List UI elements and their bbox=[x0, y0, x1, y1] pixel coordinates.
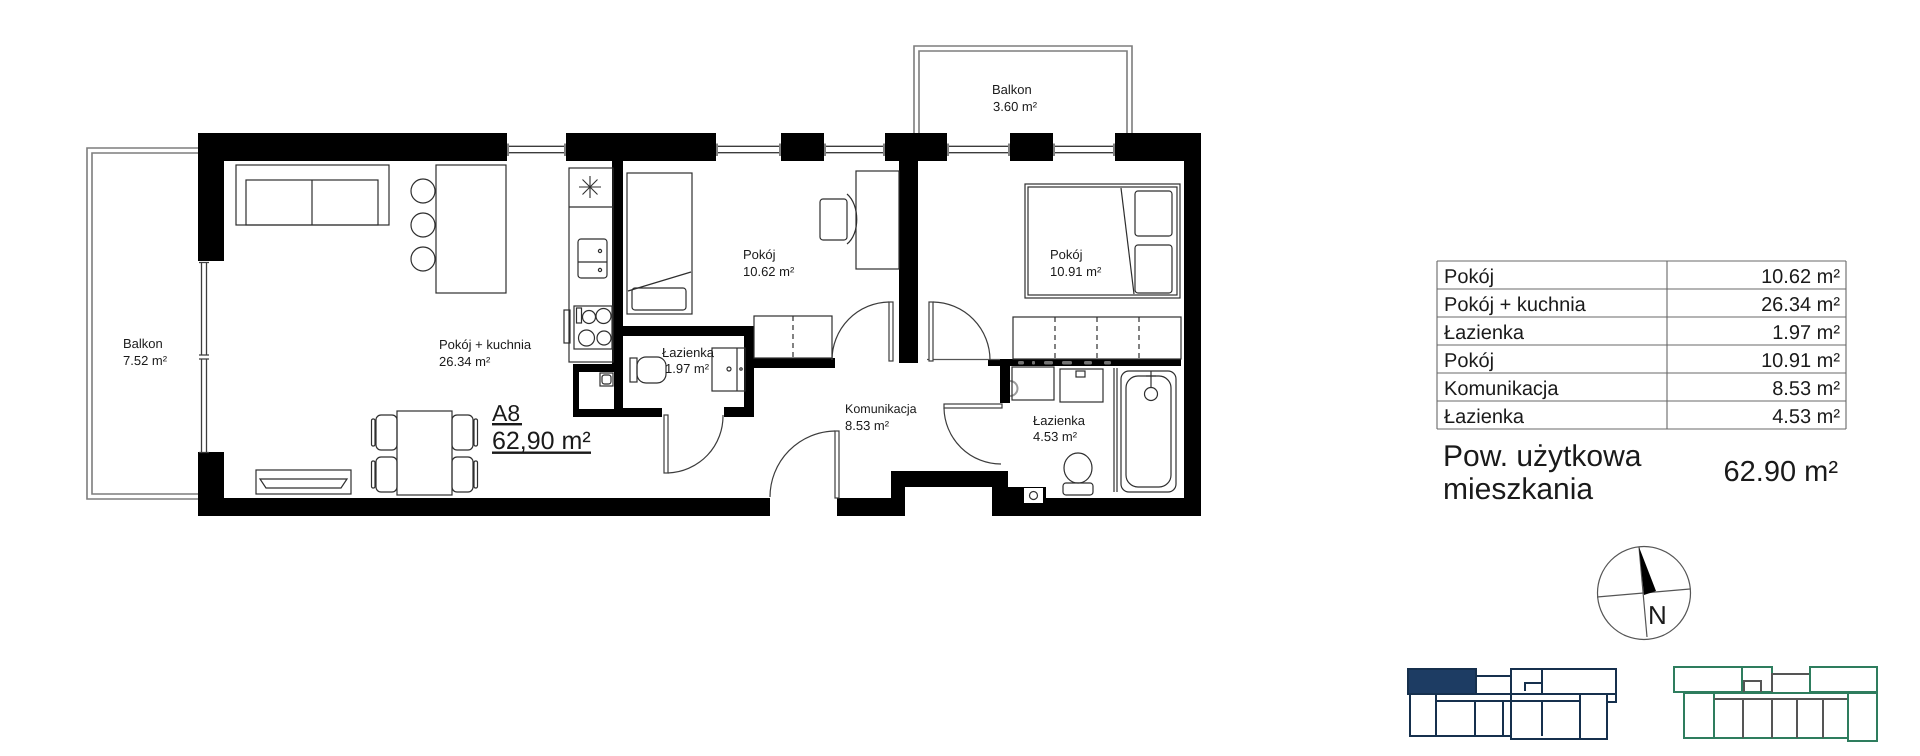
svg-text:10.91 m²: 10.91 m² bbox=[1761, 350, 1840, 372]
svg-text:3.60 m²: 3.60 m² bbox=[993, 99, 1038, 114]
svg-text:N: N bbox=[1648, 600, 1667, 630]
svg-text:Pokój: Pokój bbox=[743, 247, 776, 262]
svg-text:4.53 m²: 4.53 m² bbox=[1772, 406, 1840, 428]
svg-text:Łazienka: Łazienka bbox=[1444, 406, 1525, 428]
svg-text:mieszkania: mieszkania bbox=[1443, 473, 1593, 506]
svg-text:62,90 m²: 62,90 m² bbox=[492, 427, 591, 455]
svg-text:7.52 m²: 7.52 m² bbox=[123, 353, 168, 368]
svg-text:10.62 m²: 10.62 m² bbox=[1761, 266, 1840, 288]
svg-text:Łazienka: Łazienka bbox=[662, 345, 715, 360]
svg-text:Balkon: Balkon bbox=[992, 82, 1032, 97]
svg-text:Pokój: Pokój bbox=[1444, 350, 1494, 372]
svg-text:Pokój: Pokój bbox=[1444, 266, 1494, 288]
svg-text:Łazienka: Łazienka bbox=[1033, 413, 1086, 428]
svg-text:4.53 m²: 4.53 m² bbox=[1033, 429, 1078, 444]
svg-text:Komunikacja: Komunikacja bbox=[845, 402, 917, 416]
svg-text:Łazienka: Łazienka bbox=[1444, 322, 1525, 344]
svg-text:1.97 m²: 1.97 m² bbox=[1772, 322, 1840, 344]
svg-text:Pokój + kuchnia: Pokój + kuchnia bbox=[1444, 294, 1587, 316]
svg-text:Balkon: Balkon bbox=[123, 336, 163, 351]
svg-text:Pokój + kuchnia: Pokój + kuchnia bbox=[439, 337, 532, 352]
svg-text:10.62 m²: 10.62 m² bbox=[743, 264, 795, 279]
svg-text:26.34 m²: 26.34 m² bbox=[439, 354, 491, 369]
svg-text:Pow. użytkowa: Pow. użytkowa bbox=[1443, 440, 1642, 473]
svg-text:26.34 m²: 26.34 m² bbox=[1761, 294, 1840, 316]
svg-text:A8: A8 bbox=[492, 400, 520, 426]
svg-text:10.91 m²: 10.91 m² bbox=[1050, 264, 1102, 279]
svg-text:8.53 m²: 8.53 m² bbox=[1772, 378, 1840, 400]
svg-text:1.97 m²: 1.97 m² bbox=[665, 361, 710, 376]
svg-text:62.90 m²: 62.90 m² bbox=[1724, 456, 1839, 488]
svg-text:Pokój: Pokój bbox=[1050, 247, 1083, 262]
svg-text:Komunikacja: Komunikacja bbox=[1444, 378, 1559, 400]
svg-text:8.53 m²: 8.53 m² bbox=[845, 418, 890, 433]
